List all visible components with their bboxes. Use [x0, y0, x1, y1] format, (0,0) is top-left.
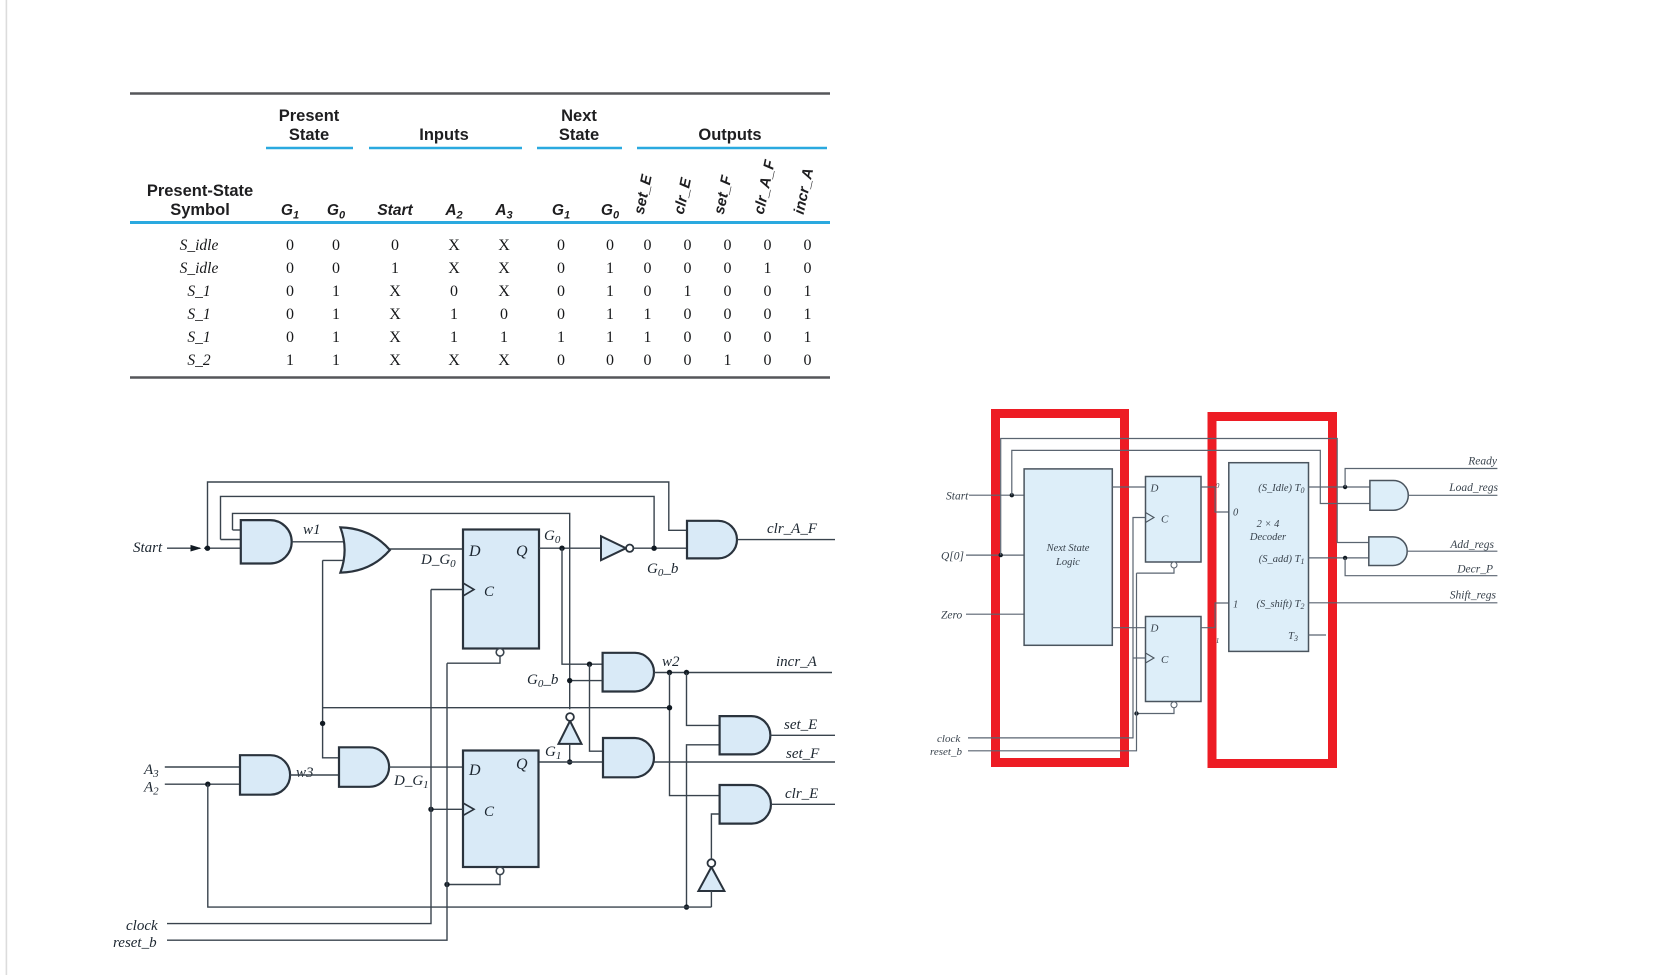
- svg-text:D: D: [1150, 483, 1159, 495]
- svg-text:S_1: S_1: [187, 306, 210, 323]
- svg-text:Next State: Next State: [1046, 543, 1090, 554]
- svg-text:Symbol: Symbol: [170, 201, 230, 219]
- svg-text:Start: Start: [946, 491, 969, 503]
- svg-text:Load_regs: Load_regs: [1448, 482, 1498, 494]
- svg-text:G0_b: G0_b: [527, 672, 559, 690]
- svg-text:C: C: [484, 804, 495, 820]
- svg-text:G0: G0: [601, 202, 620, 222]
- svg-text:(S_add) T1: (S_add) T1: [1259, 554, 1305, 566]
- svg-text:w1: w1: [303, 522, 321, 538]
- svg-text:Start: Start: [377, 202, 413, 219]
- svg-text:Outputs: Outputs: [698, 126, 761, 144]
- svg-text:Present-State: Present-State: [147, 182, 253, 200]
- svg-text:1: 1: [332, 306, 340, 323]
- svg-text:D: D: [468, 762, 481, 779]
- svg-text:X: X: [498, 283, 510, 300]
- svg-text:Decoder: Decoder: [1249, 532, 1287, 543]
- svg-text:Present: Present: [279, 107, 340, 125]
- svg-text:0: 0: [644, 283, 652, 300]
- svg-text:0: 0: [764, 352, 772, 369]
- svg-text:G0: G0: [544, 528, 561, 546]
- svg-text:0: 0: [764, 329, 772, 346]
- svg-text:set_E: set_E: [784, 717, 817, 733]
- svg-text:set_F: set_F: [786, 746, 820, 762]
- svg-text:Ready: Ready: [1467, 456, 1498, 468]
- svg-text:0: 0: [684, 306, 692, 323]
- svg-text:clr_A_F: clr_A_F: [767, 521, 818, 537]
- svg-text:0: 0: [764, 306, 772, 323]
- svg-text:0: 0: [286, 283, 294, 300]
- svg-text:0: 0: [724, 260, 732, 277]
- svg-text:1: 1: [557, 329, 565, 346]
- svg-text:0: 0: [500, 306, 508, 323]
- svg-text:Shift_regs: Shift_regs: [1450, 590, 1497, 602]
- svg-text:1: 1: [332, 283, 340, 300]
- svg-text:S_1: S_1: [187, 283, 210, 300]
- svg-text:clr_E: clr_E: [785, 786, 818, 802]
- svg-text:0: 0: [804, 237, 812, 254]
- svg-text:0: 0: [644, 352, 652, 369]
- svg-text:1: 1: [450, 329, 458, 346]
- svg-text:X: X: [448, 352, 460, 369]
- svg-text:set_F: set_F: [711, 173, 736, 216]
- svg-text:D: D: [468, 543, 481, 560]
- svg-text:0: 0: [450, 283, 458, 300]
- svg-text:A3: A3: [494, 202, 512, 222]
- svg-text:1: 1: [804, 283, 812, 300]
- svg-text:0: 0: [644, 237, 652, 254]
- svg-text:Start: Start: [133, 540, 163, 556]
- svg-text:D_G1: D_G1: [393, 773, 429, 791]
- svg-text:1: 1: [606, 260, 614, 277]
- svg-text:0: 0: [684, 237, 692, 254]
- svg-text:(S_shift) T2: (S_shift) T2: [1256, 599, 1304, 611]
- svg-text:reset_b: reset_b: [930, 746, 962, 758]
- svg-text:S_idle: S_idle: [180, 237, 219, 254]
- svg-text:0: 0: [286, 260, 294, 277]
- svg-text:0: 0: [1233, 508, 1239, 519]
- svg-text:0: 0: [644, 260, 652, 277]
- svg-text:Q: Q: [516, 543, 528, 560]
- svg-text:1: 1: [332, 329, 340, 346]
- svg-text:X: X: [389, 283, 401, 300]
- svg-text:1: 1: [450, 306, 458, 323]
- svg-text:0: 0: [557, 352, 565, 369]
- svg-text:w3: w3: [296, 765, 314, 781]
- svg-text:clock: clock: [126, 918, 158, 934]
- svg-text:1: 1: [804, 306, 812, 323]
- svg-text:0: 0: [764, 283, 772, 300]
- svg-text:0: 0: [332, 260, 340, 277]
- svg-text:S_2: S_2: [187, 352, 211, 369]
- svg-text:incr_A: incr_A: [776, 654, 818, 670]
- svg-text:clr_A_F: clr_A_F: [751, 158, 779, 216]
- svg-text:0: 0: [724, 329, 732, 346]
- svg-text:0: 0: [557, 283, 565, 300]
- svg-text:incr_A: incr_A: [791, 167, 817, 216]
- svg-text:G1: G1: [545, 744, 561, 762]
- svg-text:0: 0: [724, 237, 732, 254]
- svg-text:(S_Idle) T0: (S_Idle) T0: [1258, 483, 1304, 495]
- svg-text:State: State: [559, 126, 599, 144]
- svg-text:1: 1: [606, 306, 614, 323]
- svg-text:0: 0: [286, 329, 294, 346]
- svg-text:Inputs: Inputs: [419, 126, 469, 144]
- svg-text:0: 0: [391, 237, 399, 254]
- svg-text:1: 1: [804, 329, 812, 346]
- svg-text:C: C: [484, 584, 495, 600]
- svg-text:1: 1: [286, 352, 294, 369]
- svg-text:Next: Next: [561, 107, 597, 125]
- svg-text:0: 0: [606, 352, 614, 369]
- svg-text:X: X: [389, 352, 401, 369]
- svg-text:clock: clock: [937, 733, 961, 745]
- svg-text:w2: w2: [662, 654, 680, 670]
- svg-text:Q: Q: [516, 756, 528, 773]
- svg-text:1: 1: [606, 329, 614, 346]
- svg-text:0: 0: [804, 260, 812, 277]
- svg-text:clr_E: clr_E: [671, 175, 695, 215]
- svg-text:0: 0: [764, 237, 772, 254]
- svg-text:1: 1: [644, 329, 652, 346]
- svg-text:D: D: [1150, 623, 1159, 635]
- svg-text:2 × 4: 2 × 4: [1257, 519, 1281, 530]
- svg-text:Add_regs: Add_regs: [1449, 539, 1494, 551]
- svg-text:0: 0: [332, 237, 340, 254]
- svg-text:A2: A2: [444, 202, 462, 222]
- svg-text:X: X: [448, 237, 460, 254]
- svg-text:reset_b: reset_b: [113, 935, 157, 951]
- svg-text:1: 1: [764, 260, 772, 277]
- svg-text:A3: A3: [143, 762, 159, 780]
- svg-text:G0: G0: [327, 202, 346, 222]
- svg-text:Q[0]: Q[0]: [941, 551, 964, 563]
- svg-text:A2: A2: [143, 780, 159, 798]
- svg-text:Decr_P: Decr_P: [1456, 564, 1493, 576]
- svg-text:1: 1: [1233, 600, 1238, 611]
- svg-text:X: X: [448, 260, 460, 277]
- svg-text:X: X: [498, 260, 510, 277]
- svg-text:0: 0: [557, 306, 565, 323]
- svg-text:G0_b: G0_b: [647, 561, 679, 579]
- svg-text:0: 0: [286, 237, 294, 254]
- svg-text:X: X: [389, 306, 401, 323]
- svg-text:G1: G1: [552, 202, 570, 222]
- svg-text:0: 0: [684, 329, 692, 346]
- svg-text:0: 0: [286, 306, 294, 323]
- svg-text:S_1: S_1: [187, 329, 210, 346]
- svg-text:0: 0: [684, 352, 692, 369]
- svg-text:0: 0: [557, 237, 565, 254]
- svg-text:1: 1: [724, 352, 732, 369]
- svg-text:S_idle: S_idle: [180, 260, 219, 277]
- svg-text:0: 0: [557, 260, 565, 277]
- svg-text:0: 0: [804, 352, 812, 369]
- svg-text:1: 1: [391, 260, 399, 277]
- svg-text:X: X: [498, 352, 510, 369]
- svg-text:G1: G1: [281, 202, 299, 222]
- svg-text:X: X: [389, 329, 401, 346]
- svg-text:1: 1: [332, 352, 340, 369]
- svg-text:0: 0: [606, 237, 614, 254]
- svg-text:1: 1: [606, 283, 614, 300]
- svg-text:Zero: Zero: [941, 610, 963, 622]
- svg-text:D_G0: D_G0: [420, 552, 456, 570]
- svg-text:1: 1: [684, 283, 692, 300]
- svg-text:0: 0: [724, 306, 732, 323]
- svg-text:set_E: set_E: [631, 172, 656, 216]
- svg-text:Logic: Logic: [1055, 557, 1080, 568]
- svg-text:1: 1: [644, 306, 652, 323]
- svg-text:1: 1: [500, 329, 508, 346]
- svg-text:State: State: [289, 126, 329, 144]
- svg-text:C: C: [1161, 514, 1169, 526]
- svg-text:0: 0: [724, 283, 732, 300]
- svg-text:C: C: [1161, 654, 1169, 666]
- svg-text:X: X: [498, 237, 510, 254]
- svg-text:0: 0: [684, 260, 692, 277]
